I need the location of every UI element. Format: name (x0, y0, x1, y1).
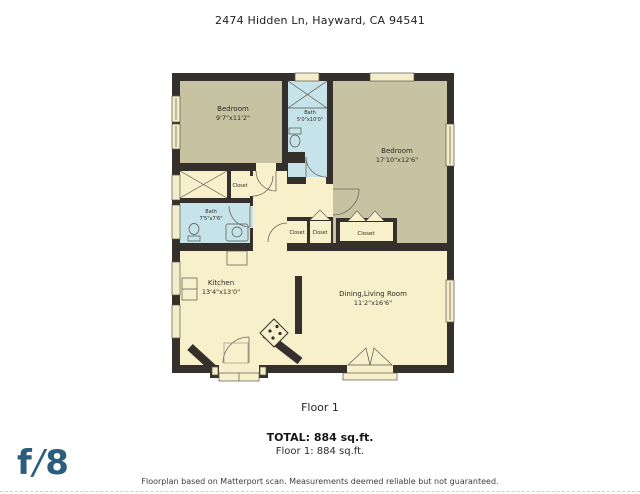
bath-2-dims: 7'5"x7'6" (199, 216, 222, 222)
floorplan-page: { "header": { "address": "2474 Hidden Ln… (0, 0, 640, 494)
window (370, 73, 414, 81)
bottom-divider (0, 491, 640, 492)
hallway-front (287, 184, 333, 217)
window (172, 262, 180, 295)
floorplan-image: Bedroom 9'7"x11'2" Bath 5'0"x10'0" Bedro… (166, 62, 462, 384)
closet-bedroom-label: Closet (357, 231, 375, 237)
bedroom-1-label: Bedroom (217, 105, 249, 113)
total-sqft: TOTAL: 884 sq.ft. (0, 431, 640, 444)
address-title: 2474 Hidden Ln, Hayward, CA 94541 (0, 14, 640, 27)
closet-row-1-label: Closet (290, 230, 305, 236)
hallway (253, 171, 287, 251)
bedroom-1-dims: 9'7"x11'2" (216, 114, 250, 122)
floorplan-svg: Bedroom 9'7"x11'2" Bath 5'0"x10'0" Bedro… (166, 62, 462, 384)
kitchen-dims: 13'4"x13'0" (202, 288, 240, 296)
bath-2-label: Bath (205, 209, 217, 215)
closet-hall-label: Closet (233, 183, 248, 189)
room-fills (180, 81, 447, 365)
window (172, 175, 180, 200)
bath-1-dims: 5'0"x10'0" (297, 117, 323, 123)
window (172, 305, 180, 338)
room-kitchen-living (180, 251, 447, 365)
patio-step (343, 373, 397, 380)
living-label: Dining,Living Room (339, 290, 407, 298)
bedroom-2-label: Bedroom (381, 147, 413, 155)
closet-row-2-label: Closet (313, 230, 328, 236)
entry-alcove (210, 365, 268, 381)
window (172, 205, 180, 239)
kitchen-label: Kitchen (208, 279, 234, 287)
window (295, 73, 319, 81)
bath-1-label: Bath (304, 110, 316, 116)
disclaimer-text: Floorplan based on Matterport scan. Meas… (0, 477, 640, 486)
room-bedroom-1 (180, 81, 282, 163)
living-dims: 11'2"x16'6" (354, 299, 392, 307)
floor-label: Floor 1 (0, 401, 640, 414)
bedroom-2-dims: 17'10"x12'6" (376, 156, 418, 164)
floor-sqft: Floor 1: 884 sq.ft. (0, 446, 640, 457)
